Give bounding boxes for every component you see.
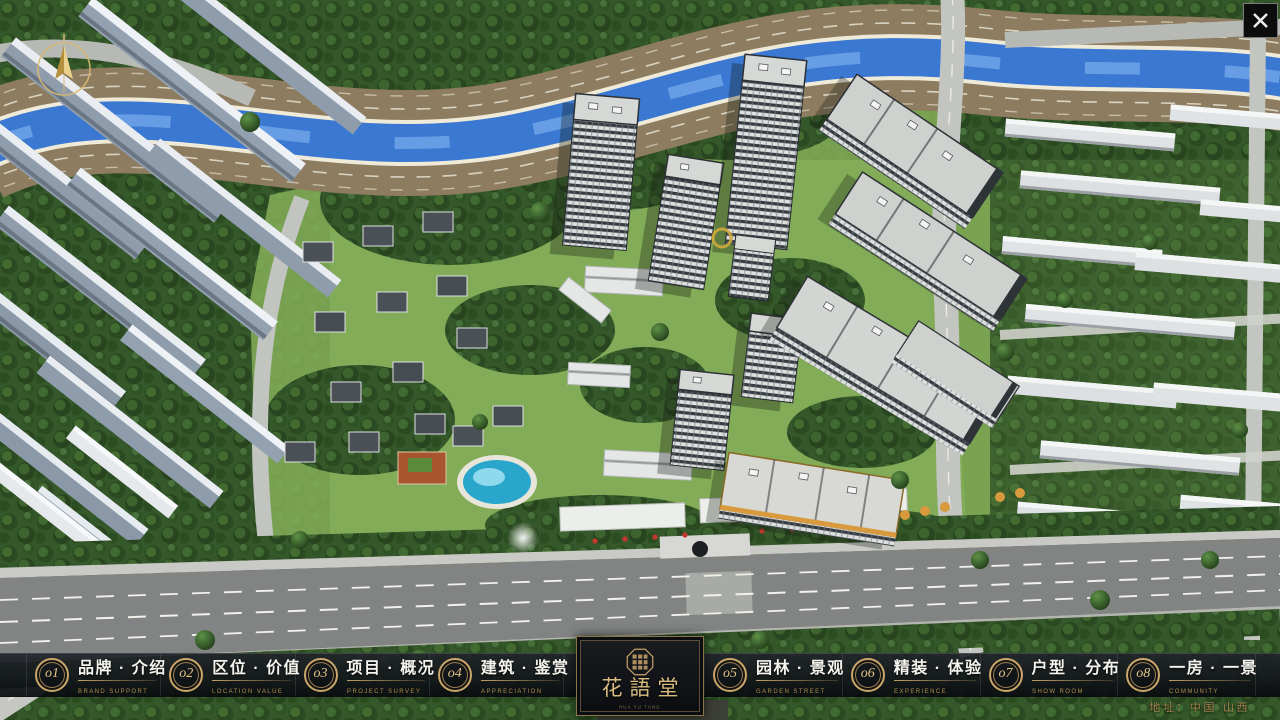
menu-item-number: o5	[723, 666, 737, 682]
menu-item-number: o4	[448, 666, 462, 682]
menu-item-title: 建筑 · 鉴赏	[481, 661, 559, 677]
menu-item-divider	[1169, 680, 1251, 681]
aerial-3d-viewport[interactable]	[0, 0, 1280, 720]
nav-group-left: o1 品牌 · 介绍BRAND SUPPORT o2 区位 · 价值LOCATI…	[26, 654, 564, 696]
menu-item-number: o6	[861, 666, 875, 682]
project-logo-plaque: 花語堂 HUA YU TANG	[576, 636, 704, 716]
menu-item-divider	[1032, 680, 1114, 681]
close-button[interactable]	[1243, 3, 1278, 38]
menu-item-title: 园林 · 景观	[756, 661, 838, 677]
menu-item-divider	[481, 680, 559, 681]
menu-number-badge: o3	[304, 658, 338, 692]
menu-item-title: 项目 · 概况	[347, 661, 425, 677]
close-icon	[1252, 12, 1269, 29]
menu-item-divider	[347, 680, 425, 681]
swimming-pool	[457, 455, 537, 509]
menu-item-divider	[756, 680, 838, 681]
menu-item-number: o1	[45, 666, 59, 682]
menu-number-badge: o6	[851, 658, 885, 692]
menu-item-title: 户型 · 分布	[1032, 661, 1114, 677]
menu-item-garden-landscape[interactable]: o5 园林 · 景观GARDEN STREET	[704, 654, 842, 696]
seal-icon	[625, 647, 655, 677]
menu-item-number: o8	[1136, 666, 1150, 682]
menu-item-subtitle: BRAND SUPPORT	[78, 688, 148, 695]
menu-number-badge: o8	[1126, 658, 1160, 692]
menu-item-subtitle: PROJECT SURVEY	[347, 688, 421, 695]
menu-item-number: o3	[314, 666, 328, 682]
menu-item-divider	[894, 680, 976, 681]
lens-flare	[507, 522, 539, 554]
menu-number-badge: o2	[169, 658, 203, 692]
menu-number-badge: o7	[989, 658, 1023, 692]
nav-group-right: o5 园林 · 景观GARDEN STREET o6 精装 · 体验EXPERI…	[704, 654, 1256, 696]
menu-item-subtitle: APPRECIATION	[481, 688, 543, 695]
menu-item-number: o2	[179, 666, 193, 682]
menu-item-location-value[interactable]: o2 区位 · 价值LOCATION VALUE	[160, 654, 294, 696]
menu-item-number: o7	[999, 666, 1013, 682]
menu-item-title: 一房 · 一景	[1169, 661, 1251, 677]
project-logo-name: 花語堂	[595, 678, 686, 699]
menu-item-title: 区位 · 价值	[212, 661, 290, 677]
menu-item-subtitle: SHOW ROOM	[1032, 688, 1084, 695]
project-address: 地址：中国·山西	[1149, 699, 1250, 715]
menu-item-brand-intro[interactable]: o1 品牌 · 介绍BRAND SUPPORT	[26, 654, 160, 696]
menu-item-project-overview[interactable]: o3 项目 · 概况PROJECT SURVEY	[295, 654, 429, 696]
menu-number-badge: o1	[35, 658, 69, 692]
menu-item-architecture-appreciation[interactable]: o4 建筑 · 鉴赏APPRECIATION	[429, 654, 564, 696]
project-logo-subtitle: HUA YU TANG	[619, 705, 661, 710]
clubhouse	[398, 452, 446, 484]
menu-item-title: 精装 · 体验	[894, 661, 976, 677]
menu-number-badge: o4	[438, 658, 472, 692]
menu-item-room-view[interactable]: o8 一房 · 一景COMMUNITY	[1117, 654, 1256, 696]
menu-item-subtitle: LOCATION VALUE	[212, 688, 283, 695]
menu-item-floorplan-distribution[interactable]: o7 户型 · 分布SHOW ROOM	[980, 654, 1118, 696]
menu-item-divider	[212, 680, 290, 681]
menu-item-title: 品牌 · 介绍	[78, 661, 156, 677]
menu-item-subtitle: GARDEN STREET	[756, 688, 826, 695]
compass-north-icon	[32, 32, 96, 102]
menu-item-subtitle: EXPERIENCE	[894, 688, 947, 695]
menu-item-subtitle: COMMUNITY	[1169, 688, 1219, 695]
menu-item-interior-experience[interactable]: o6 精装 · 体验EXPERIENCE	[842, 654, 980, 696]
presentation-window: o1 品牌 · 介绍BRAND SUPPORT o2 区位 · 价值LOCATI…	[0, 0, 1280, 720]
menu-item-divider	[78, 680, 156, 681]
menu-number-badge: o5	[713, 658, 747, 692]
